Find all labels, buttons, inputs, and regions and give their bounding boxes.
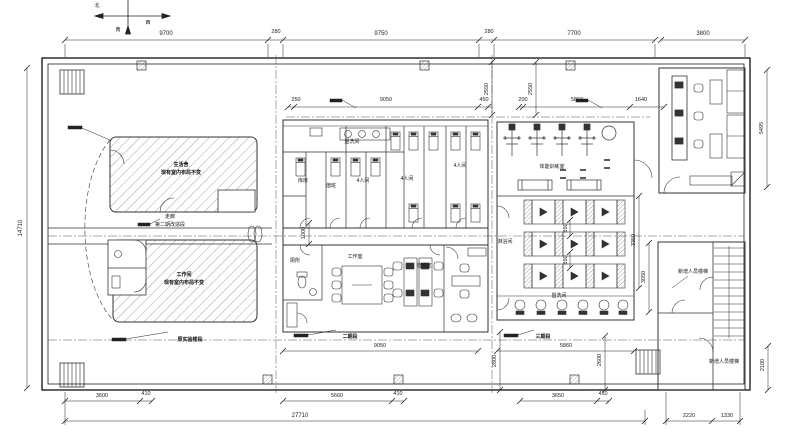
- room-upper-left-name: 生活舍: [173, 162, 188, 168]
- room-upper-left-note: 现有室内布局不变: [161, 170, 201, 176]
- washroom-bottom-label: 盥洗间: [551, 293, 566, 299]
- dim-1000: 1000: [301, 227, 307, 239]
- dim-5495: 5495: [759, 122, 765, 134]
- dorm-a-label: 4人间: [357, 178, 370, 184]
- dim-2550b: 2550: [528, 83, 534, 95]
- storage-label: 库房: [298, 178, 308, 184]
- phase-right-label: 三期段: [535, 334, 550, 340]
- compass-south-label: 南: [115, 27, 120, 33]
- workroom-label: 工作室: [347, 254, 362, 260]
- stair-top-label: 新增人员楼梯: [678, 269, 708, 275]
- gym-equipment: [504, 124, 616, 190]
- stair-bottom-label: 新增人员楼梯: [709, 359, 739, 365]
- dim-410b: 410: [393, 391, 402, 397]
- compass-west-label: 西: [145, 20, 150, 26]
- dim-410c: 410: [598, 391, 607, 397]
- phase-left-label: 原实验楼段: [177, 337, 202, 343]
- dim-850a: 850: [563, 223, 569, 232]
- dim-27710: 27710: [292, 413, 309, 419]
- dim-2100: 2100: [760, 359, 766, 371]
- axis-lines: [48, 55, 744, 393]
- corridor-phase-label: 第二期改造段: [155, 222, 185, 228]
- dim-below-5860: 5860: [560, 343, 572, 349]
- dim-3350: 3350: [631, 234, 637, 246]
- dim-top-9750: 9750: [374, 31, 387, 37]
- dim-top-280a: 280: [271, 29, 280, 35]
- dim-3600: 3600: [96, 393, 108, 399]
- gym-label: 体能训练室: [539, 164, 564, 170]
- conference-table: [332, 266, 393, 304]
- dim-9050: 9050: [380, 97, 392, 103]
- dim-1330: 1330: [721, 413, 733, 419]
- dim-2600: 2600: [597, 354, 603, 366]
- room-lower-left-name: 工作间: [176, 272, 191, 278]
- left-building: [48, 137, 272, 322]
- middle-building: [283, 120, 488, 332]
- office-top-right: [659, 68, 745, 193]
- dorm-b-label: 4人间: [401, 176, 414, 182]
- dim-top-9700: 9700: [159, 31, 172, 37]
- dim-top-7700: 7700: [567, 31, 580, 37]
- dim-2550a: 2550: [484, 83, 490, 95]
- room-lower-left-note: 现有室内布局不变: [164, 280, 204, 286]
- washroom-top-label: 盥洗间: [344, 139, 359, 145]
- floorplan-linework: [0, 0, 800, 444]
- duty-office-label: 值班室: [416, 263, 431, 269]
- dim-450: 450: [479, 97, 488, 103]
- right-building: [497, 122, 652, 320]
- duty-office: [446, 247, 486, 322]
- dim-1640: 1640: [635, 97, 647, 103]
- dim-3650: 3650: [552, 393, 564, 399]
- staircase: [658, 242, 745, 390]
- beds: [296, 132, 480, 222]
- dim-5660: 5660: [331, 393, 343, 399]
- dim-5860: 5860: [571, 97, 583, 103]
- duty-label: 值班: [326, 183, 336, 189]
- dim-top-3800: 3800: [696, 31, 709, 37]
- dim-410a: 410: [141, 391, 150, 397]
- phase-mid-label: 二期段: [342, 334, 357, 340]
- dim-3050: 3050: [641, 271, 647, 283]
- floor-plan: 北 西 南 9700 280 9750 280 7700 3800 250 90…: [0, 0, 800, 444]
- dim-850b: 850: [563, 255, 569, 264]
- dim-2800: 2800: [492, 355, 498, 367]
- compass-north-label: 北: [94, 3, 99, 9]
- dim-14710: 14710: [18, 220, 24, 237]
- north-arrow-icon: [95, 0, 170, 34]
- dim-200: 200: [518, 97, 527, 103]
- dim-top-280b: 280: [484, 29, 493, 35]
- dorm-c-label: 4人间: [454, 163, 467, 169]
- dim-below-9050: 9050: [374, 343, 386, 349]
- shower-label: 淋浴间: [497, 239, 512, 245]
- dim-2220: 2220: [683, 413, 695, 419]
- dim-250: 250: [291, 97, 300, 103]
- corridor-label: 走廊: [165, 214, 175, 220]
- wc-label: 厕所: [290, 258, 300, 264]
